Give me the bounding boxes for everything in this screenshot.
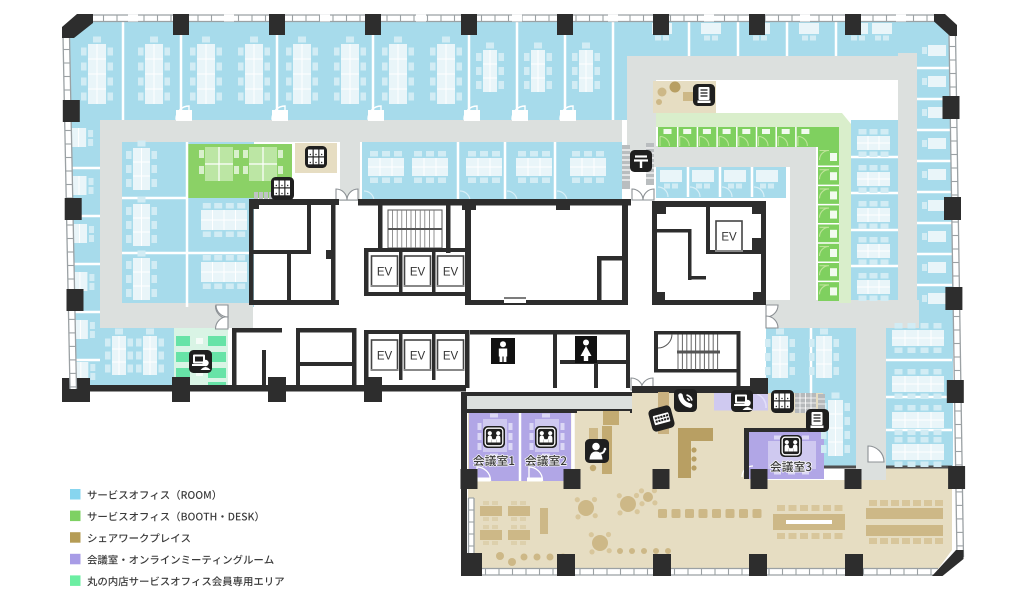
svg-text:EV: EV <box>410 351 426 363</box>
svg-text:EV: EV <box>443 351 459 363</box>
svg-text:EV: EV <box>377 351 393 363</box>
svg-text:EV: EV <box>377 267 393 279</box>
svg-text:EV: EV <box>410 267 426 279</box>
svg-text:EV: EV <box>443 267 459 279</box>
svg-text:EV: EV <box>721 232 737 244</box>
